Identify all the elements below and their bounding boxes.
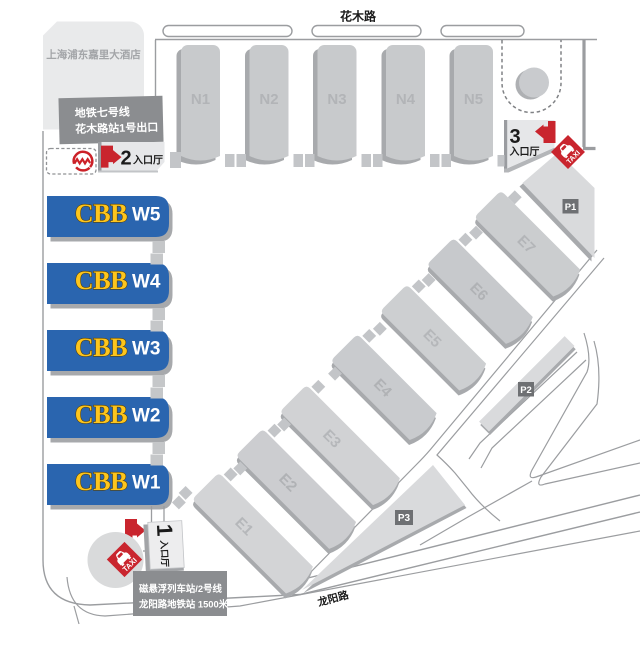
svg-text:N1: N1: [191, 91, 210, 108]
svg-text:W4: W4: [132, 272, 161, 293]
svg-text:W1: W1: [132, 473, 161, 494]
svg-text:N5: N5: [464, 91, 483, 108]
svg-text:地铁七号线: 地铁七号线: [75, 105, 130, 120]
svg-text:上海浦东嘉里大酒店: 上海浦东嘉里大酒店: [46, 48, 141, 61]
svg-text:CBB: CBB: [75, 333, 128, 362]
svg-text:1: 1: [152, 523, 178, 537]
svg-text:入口厅: 入口厅: [133, 155, 163, 167]
svg-text:P3: P3: [398, 513, 411, 524]
svg-text:入口厅: 入口厅: [510, 146, 540, 158]
svg-text:花木路: 花木路: [340, 9, 377, 24]
svg-text:W3: W3: [132, 339, 161, 360]
svg-text:W5: W5: [132, 205, 161, 226]
svg-text:P1: P1: [565, 202, 577, 213]
svg-text:龙阳路地铁站 1500米: 龙阳路地铁站 1500米: [138, 599, 229, 610]
svg-text:CBB: CBB: [75, 467, 128, 496]
svg-text:入口厅: 入口厅: [159, 539, 170, 568]
svg-text:3: 3: [510, 126, 521, 148]
svg-text:N2: N2: [259, 91, 278, 108]
svg-text:W2: W2: [132, 406, 161, 427]
svg-text:N4: N4: [396, 91, 416, 108]
svg-text:磁悬浮列车站/2号线: 磁悬浮列车站/2号线: [139, 583, 222, 594]
svg-text:CBB: CBB: [75, 400, 128, 429]
svg-text:P2: P2: [520, 385, 532, 396]
svg-text:CBB: CBB: [75, 266, 128, 295]
svg-text:CBB: CBB: [75, 199, 128, 228]
svg-text:N3: N3: [327, 91, 346, 108]
svg-text:2: 2: [121, 148, 132, 170]
